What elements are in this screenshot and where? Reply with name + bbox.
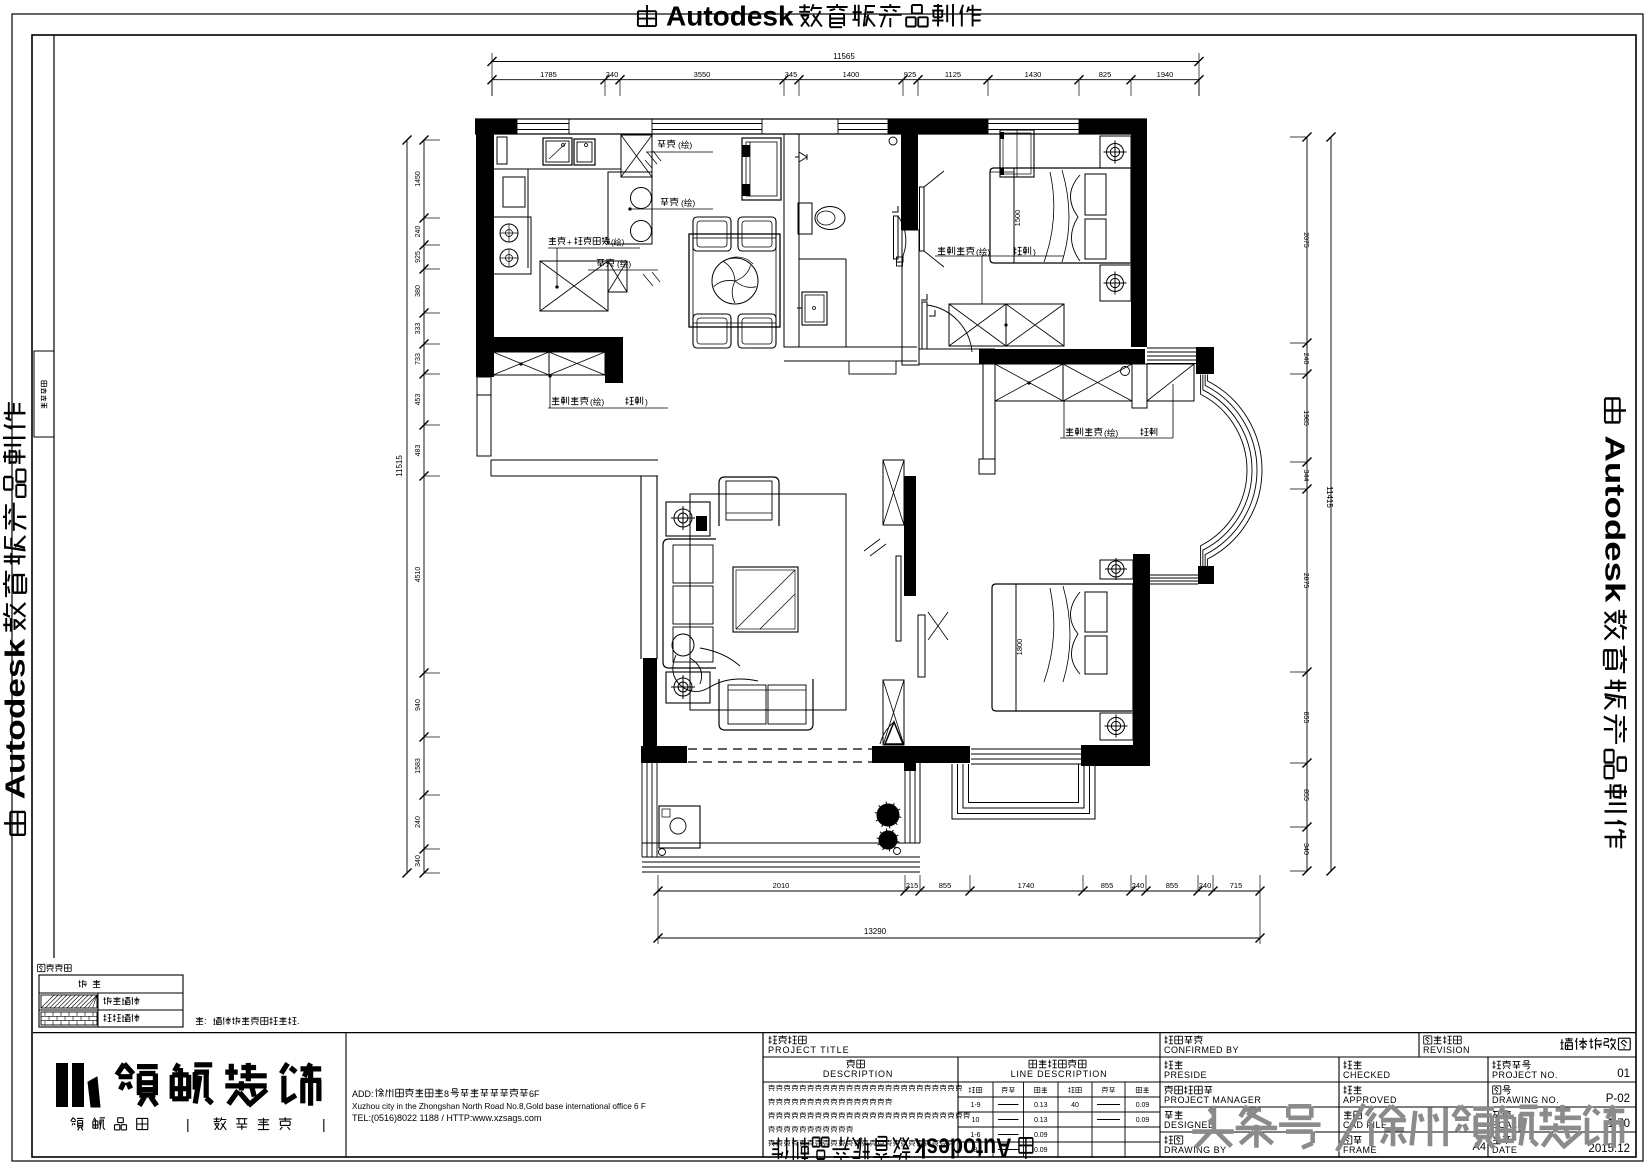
svg-text:1785: 1785	[540, 70, 557, 79]
svg-text:10: 10	[972, 1117, 980, 1124]
svg-text:Autodesk: Autodesk	[914, 1132, 1011, 1164]
svg-text:1125: 1125	[945, 70, 961, 79]
svg-text:215: 215	[906, 881, 919, 890]
svg-text:0.13: 0.13	[1034, 1117, 1048, 1124]
svg-text:Autodesk: Autodesk	[1599, 435, 1631, 603]
svg-text:733: 733	[415, 353, 422, 365]
svg-text:240: 240	[1199, 881, 1212, 890]
svg-text:(绘): (绘)	[681, 198, 695, 208]
svg-text:8: 8	[444, 1089, 449, 1099]
svg-text:855: 855	[1302, 712, 1309, 724]
svg-text:1-9: 1-9	[970, 1102, 980, 1109]
svg-text:855: 855	[1166, 881, 1179, 890]
svg-text:333: 333	[415, 323, 422, 335]
svg-text:344: 344	[1302, 470, 1309, 482]
svg-text:1450: 1450	[415, 171, 422, 187]
svg-text:CHECKED: CHECKED	[1343, 1070, 1391, 1080]
svg-text:P-02: P-02	[1606, 1093, 1630, 1105]
svg-text:PROJECT TITLE: PROJECT TITLE	[768, 1045, 850, 1055]
svg-text::: :	[204, 1016, 207, 1026]
svg-text:(绘): (绘)	[678, 140, 692, 150]
svg-text:CONFIRMED BY: CONFIRMED BY	[1164, 1045, 1239, 1055]
svg-text:715: 715	[1230, 881, 1243, 890]
svg-text:11415: 11415	[1325, 486, 1334, 508]
svg-text:DATE: DATE	[1492, 1145, 1517, 1155]
svg-text:LINE DESCRIPTION: LINE DESCRIPTION	[1011, 1069, 1108, 1079]
svg-text:+: +	[567, 238, 572, 247]
svg-text:DESIGNED: DESIGNED	[1164, 1120, 1215, 1130]
svg-text:Autodesk: Autodesk	[0, 638, 31, 799]
svg-text:0.13: 0.13	[1034, 1102, 1048, 1109]
svg-text:240: 240	[415, 816, 422, 828]
svg-text:): )	[645, 397, 648, 407]
svg-text:PROJECT NO.: PROJECT NO.	[1492, 1070, 1558, 1080]
svg-text:453: 453	[415, 394, 422, 406]
svg-text:40: 40	[1071, 1102, 1079, 1109]
svg-text:(绘): (绘)	[617, 259, 631, 269]
svg-text:340: 340	[1302, 843, 1309, 855]
svg-text:240: 240	[606, 70, 619, 79]
svg-text:345: 345	[785, 70, 798, 79]
svg-text:6F: 6F	[529, 1089, 540, 1099]
svg-text:240: 240	[1302, 353, 1309, 365]
svg-text:(绘): (绘)	[611, 237, 625, 247]
svg-text:TEL:(0516)8022 1188 / HTTP:www: TEL:(0516)8022 1188 / HTTP:www.xzsags.co…	[352, 1113, 541, 1123]
svg-text:380: 380	[415, 285, 422, 297]
svg-text:1500: 1500	[1013, 210, 1022, 227]
svg-text:483: 483	[415, 445, 422, 457]
svg-text:2010: 2010	[773, 881, 790, 890]
svg-text:240: 240	[1132, 881, 1145, 890]
svg-text:FRAME: FRAME	[1343, 1145, 1377, 1155]
svg-text:ADD:: ADD:	[352, 1089, 374, 1099]
svg-text:(绘): (绘)	[590, 397, 604, 407]
svg-text:1400: 1400	[843, 70, 860, 79]
svg-text:): )	[1033, 247, 1036, 257]
svg-text:8: 8	[974, 1147, 978, 1154]
svg-text:1800: 1800	[1015, 639, 1024, 656]
svg-text:855: 855	[939, 881, 952, 890]
svg-text:925: 925	[904, 70, 917, 79]
svg-text:PRESIDE: PRESIDE	[1164, 1070, 1207, 1080]
svg-text:0.09: 0.09	[1136, 1117, 1150, 1124]
svg-text:2015.12: 2015.12	[1588, 1143, 1630, 1155]
svg-text:DRAWING NO.: DRAWING NO.	[1492, 1095, 1559, 1105]
svg-text:0.09: 0.09	[1136, 1102, 1150, 1109]
svg-text:|: |	[186, 1116, 190, 1132]
svg-text:.: .	[297, 1016, 300, 1026]
svg-text:1430: 1430	[1025, 70, 1042, 79]
svg-text:Autodesk: Autodesk	[666, 1, 794, 32]
svg-text:(绘): (绘)	[1104, 428, 1118, 438]
svg-text:13290: 13290	[864, 927, 887, 936]
svg-text:4510: 4510	[415, 567, 422, 583]
svg-text:925: 925	[415, 251, 422, 263]
svg-text:01: 01	[1617, 1068, 1630, 1080]
svg-text:DESCRIPTION: DESCRIPTION	[823, 1069, 893, 1079]
svg-text:1583: 1583	[415, 758, 422, 774]
svg-text:2875: 2875	[1302, 573, 1309, 589]
svg-text:Xuzhou city in the Zhongshan N: Xuzhou city in the Zhongshan North Road …	[352, 1102, 646, 1111]
svg-text:11565: 11565	[833, 52, 855, 61]
svg-text:11515: 11515	[395, 455, 404, 477]
svg-text:APPROVED: APPROVED	[1343, 1095, 1397, 1105]
svg-text:PROJECT MANAGER: PROJECT MANAGER	[1164, 1095, 1261, 1105]
svg-text:2075: 2075	[1302, 232, 1309, 248]
svg-text:855: 855	[1302, 789, 1309, 801]
svg-text:1740: 1740	[1018, 881, 1035, 890]
svg-text:|: |	[322, 1116, 326, 1132]
svg-text:3550: 3550	[694, 70, 711, 79]
svg-text:855: 855	[1101, 881, 1114, 890]
svg-text:REVISION: REVISION	[1423, 1045, 1470, 1055]
svg-text:825: 825	[1099, 70, 1112, 79]
svg-text:1985: 1985	[1302, 410, 1309, 426]
svg-text:0.09: 0.09	[1034, 1147, 1048, 1154]
svg-text:940: 940	[415, 699, 422, 711]
svg-text:340: 340	[415, 855, 422, 867]
svg-text:0.09: 0.09	[1034, 1132, 1048, 1139]
svg-text:1-6: 1-6	[970, 1132, 980, 1139]
svg-text:240: 240	[415, 226, 422, 238]
svg-text:(绘): (绘)	[976, 247, 990, 257]
svg-text:1940: 1940	[1157, 70, 1174, 79]
